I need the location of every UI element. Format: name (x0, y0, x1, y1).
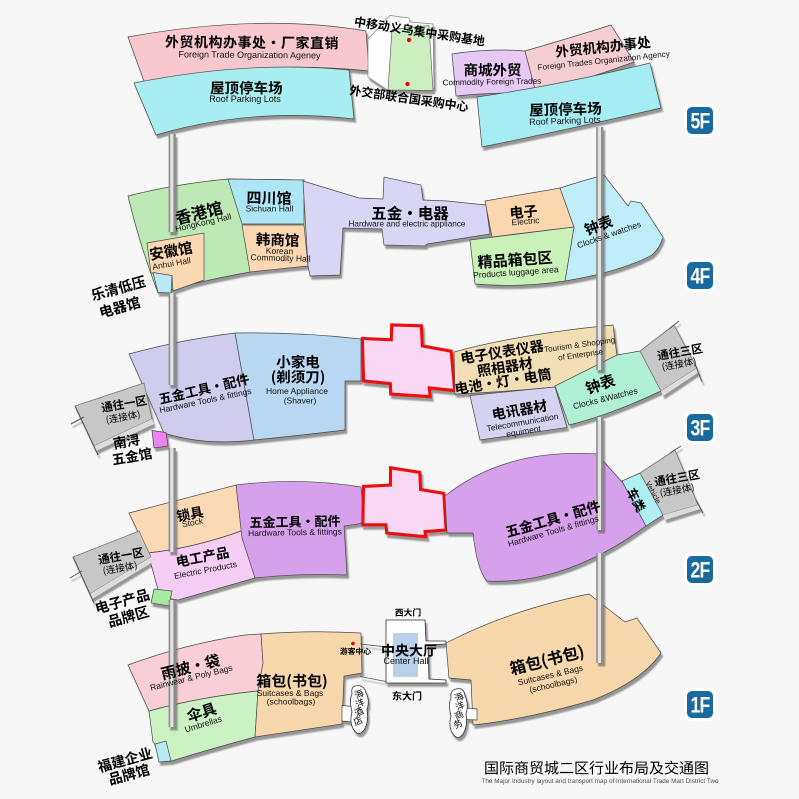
svg-text:(schoolbags): (schoolbags) (267, 696, 316, 706)
svg-text:Roof Parking Lots: Roof Parking Lots (209, 94, 281, 104)
svg-text:The Major Industry layout and: The Major Industry layout and transport … (481, 778, 719, 785)
svg-text:1F: 1F (691, 694, 711, 718)
svg-text:5F: 5F (691, 110, 711, 134)
svg-text:Commodity Foreign Trades: Commodity Foreign Trades (443, 77, 542, 88)
svg-text:Sichuan Hall: Sichuan Hall (246, 204, 294, 214)
svg-text:Hardware Tools & fittings: Hardware Tools & fittings (248, 526, 342, 538)
svg-text:Foreign Trade Organization Age: Foreign Trade Organization Ageney (178, 49, 321, 60)
svg-text:Center Hall: Center Hall (383, 656, 428, 666)
svg-text:(Shaver): (Shaver) (284, 395, 317, 405)
svg-text:4F: 4F (691, 265, 711, 289)
svg-text:3F: 3F (691, 417, 711, 441)
svg-text:2F: 2F (691, 559, 711, 583)
svg-text:Home Appliance: Home Appliance (266, 386, 328, 396)
svg-text:Commodity Hall: Commodity Hall (250, 252, 310, 264)
svg-text:Hardware and electric applianc: Hardware and electric appliance (349, 220, 466, 229)
